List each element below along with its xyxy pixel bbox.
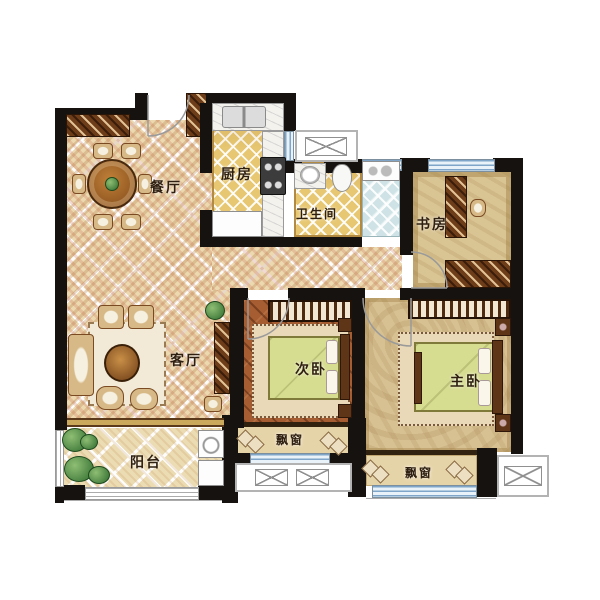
ac-platform-x-icon [255, 469, 288, 486]
entry-cabinet [66, 114, 130, 137]
bed-headboard [340, 334, 350, 400]
balcony-sliding-door [67, 418, 224, 427]
wall-segment [200, 237, 296, 247]
dining-chair [121, 143, 141, 159]
master-bedroom-wardrobe [408, 299, 511, 319]
room-label-living: 客厅 [170, 350, 202, 370]
nightstand [495, 318, 511, 336]
shower-vanity [362, 161, 400, 181]
wall-segment [511, 158, 523, 454]
outer-sill-line [366, 498, 496, 502]
dining-chair [93, 143, 113, 159]
nightstand [338, 318, 352, 332]
balcony-plant [88, 466, 110, 484]
nightstand [495, 414, 511, 432]
table-centerpiece-plant [105, 177, 119, 191]
room-label-study: 书房 [416, 214, 448, 234]
bed-headboard [492, 340, 503, 414]
toilet [332, 164, 352, 192]
washing-machine [198, 430, 224, 458]
coffee-table [104, 344, 140, 382]
living-room-plant [205, 301, 225, 320]
room-label-balcony: 阳台 [130, 452, 162, 472]
ac-platform-x-icon [305, 137, 347, 156]
bay-window-master-glazing [372, 485, 477, 498]
side-table [204, 396, 222, 412]
room-label-master-bedroom: 主卧 [450, 371, 482, 391]
bay-window-sill [244, 422, 352, 427]
dining-chair [72, 174, 86, 194]
room-label-second-bedroom: 次卧 [295, 359, 327, 379]
bay-window-sill [366, 450, 478, 455]
balcony-front-glazing [85, 487, 199, 500]
armchair [128, 305, 154, 329]
study-window [428, 159, 495, 172]
wall-segment [230, 288, 244, 428]
kitchen-sink [222, 106, 266, 128]
kitchen-lower-cabinet [212, 211, 262, 237]
wall-segment [290, 237, 362, 247]
wall-segment [400, 158, 430, 172]
balcony-plant [80, 434, 98, 450]
floor-plan: 餐厅 厨房 卫生间 书房 客厅 次卧 主卧 阳台 飘窗 飘窗 [0, 0, 600, 600]
room-label-bathroom: 卫生间 [296, 205, 338, 222]
wall-segment [284, 93, 296, 131]
wall-segment [352, 293, 365, 422]
room-label-bay-window-second: 飘窗 [276, 431, 304, 448]
study-wardrobe [445, 260, 511, 288]
bathroom-sink [300, 166, 320, 184]
wall-segment [200, 103, 212, 173]
stove [260, 157, 286, 195]
study-chair [470, 199, 486, 217]
lounge-chair [130, 388, 158, 410]
dining-chair [121, 214, 141, 230]
outer-sill-line [64, 500, 222, 504]
hallway-floor [212, 247, 402, 290]
lounge-chair [96, 386, 124, 410]
bed-bench [414, 352, 422, 404]
armchair [98, 305, 124, 329]
room-label-kitchen: 厨房 [221, 164, 253, 184]
ac-platform-x-icon [504, 466, 542, 486]
wall-segment [400, 158, 413, 255]
sofa [68, 334, 94, 396]
kitchen-side-window [284, 131, 294, 161]
nightstand [338, 404, 352, 418]
dining-chair [93, 214, 113, 230]
pillow [326, 340, 338, 364]
pillow [326, 370, 338, 394]
ac-platform-x-icon [296, 469, 329, 486]
wall-segment [135, 93, 148, 120]
wall-segment [477, 448, 497, 497]
balcony-cabinet [198, 460, 224, 486]
ac-platform [235, 463, 352, 492]
wall-segment [55, 108, 67, 430]
room-label-bay-window-master: 飘窗 [405, 464, 433, 481]
study-desk [445, 176, 467, 238]
tv-cabinet [214, 322, 230, 394]
room-label-dining: 餐厅 [150, 177, 182, 197]
